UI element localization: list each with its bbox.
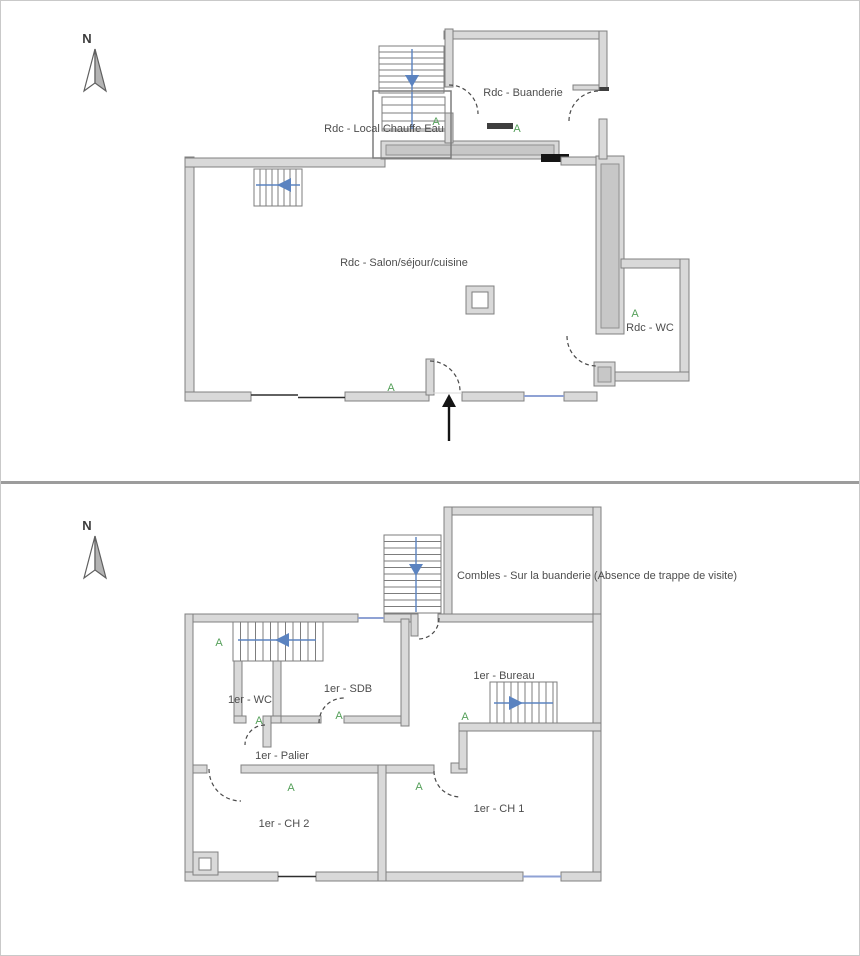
panel-divider [1,481,860,484]
door-marker-a: A [631,308,639,320]
room-label-1er-ch2: 1er - CH 2 [259,818,310,830]
stairs-up-exterior [384,535,441,613]
north-arrow-icon: N [82,518,106,578]
room-label-1er-ch1: 1er - CH 1 [474,803,525,815]
entrance-arrow-icon [442,394,456,441]
door-marker-a: A [287,782,295,794]
door-marker-a: A [461,711,469,723]
door-marker-a: A [513,123,521,135]
room-label-buanderie: Rdc - Buanderie [483,87,563,99]
ground-floor-plan: N [1,1,860,479]
door-marker-a: A [215,637,223,649]
door-marker-a: A [432,116,440,128]
first-floor-plan: N [1,488,860,956]
room-label-rdc-wc: Rdc - WC [626,322,674,334]
room-label-1er-bureau: 1er - Bureau [473,670,534,682]
door-marker-a: A [387,382,395,394]
door-marker-a: A [415,781,423,793]
north-arrow-icon: N [82,31,106,91]
room-label-salon-sejour-cuisine: Rdc - Salon/séjour/cuisine [340,257,468,269]
room-label-1er-sdb: 1er - SDB [324,683,372,695]
room-label-combles: Combles - Sur la buanderie (Absence de t… [457,570,737,582]
room-label-1er-palier: 1er - Palier [255,750,309,762]
door-marker-a: A [335,710,343,722]
room-label-local-chauffe-eau: Rdc - Local Chauffe Eau [324,123,444,135]
north-label: N [82,518,91,533]
room-label-1er-wc: 1er - WC [228,694,272,706]
stairs-salon [254,169,302,206]
door-marker-a: A [255,715,263,727]
north-label: N [82,31,91,46]
floor-plan-page: N [0,0,860,956]
